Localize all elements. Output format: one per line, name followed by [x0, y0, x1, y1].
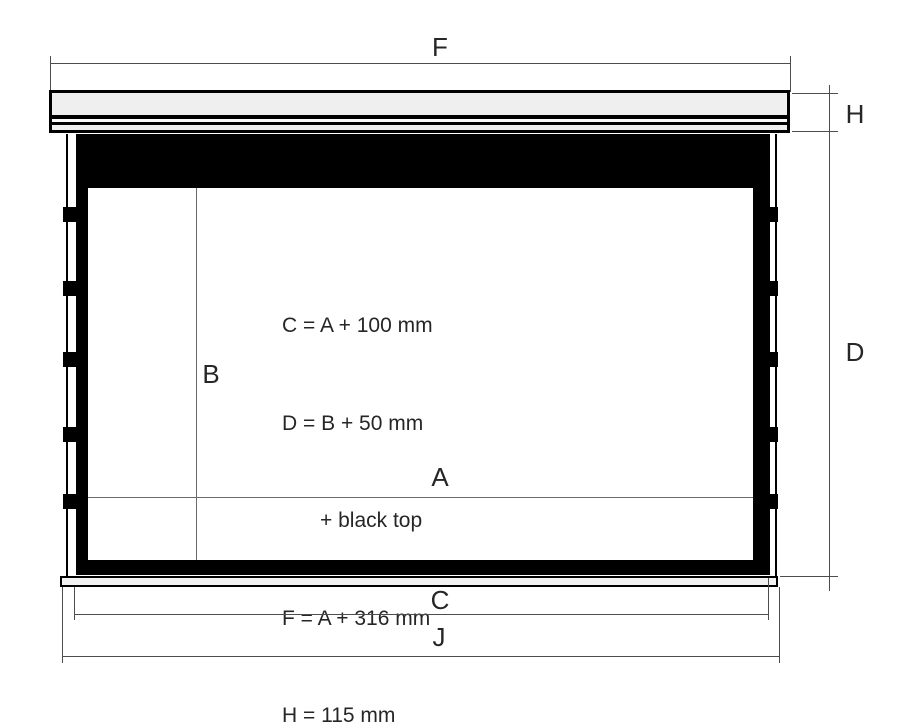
dim-label-b: B — [196, 360, 226, 388]
housing-groove-lower — [52, 122, 787, 125]
dim-line-f — [50, 63, 790, 64]
formula-line: + black top — [282, 505, 433, 538]
formula-list: C = A + 100 mm D = B + 50 mm + black top… — [282, 245, 433, 723]
dim-line-c — [74, 614, 769, 615]
screen-dimension-diagram: F H D B A C = A + 100 mm D = B + 50 mm +… — [0, 0, 900, 723]
dim-label-d: D — [840, 338, 870, 366]
formula-line: C = A + 100 mm — [282, 310, 433, 343]
tension-tab — [63, 427, 77, 442]
dim-label-c: C — [425, 586, 455, 614]
dim-tick-c-left — [74, 587, 75, 620]
dim-tick-j-left — [62, 587, 63, 663]
dim-tick-f-left — [50, 56, 51, 93]
tension-tab — [63, 281, 77, 296]
tension-tab — [763, 427, 778, 442]
dim-ext-h-top — [792, 93, 838, 94]
tension-tab — [763, 494, 778, 509]
dim-label-f: F — [425, 33, 455, 61]
formula-line: D = B + 50 mm — [282, 408, 433, 441]
dim-line-h-d — [829, 85, 830, 591]
tension-tab — [63, 494, 77, 509]
dim-ext-h-bottom — [792, 131, 838, 132]
dim-line-j — [62, 656, 780, 657]
dim-ext-d-bottom — [780, 576, 838, 577]
dim-label-h: H — [840, 100, 870, 128]
dim-label-j: J — [424, 623, 454, 651]
tension-tab — [763, 281, 778, 296]
bottom-weight-bar — [60, 576, 778, 587]
screen-housing — [49, 90, 790, 133]
formula-line: F = A + 316 mm — [282, 603, 433, 636]
tension-tab — [763, 207, 778, 222]
tension-tab — [763, 352, 778, 367]
dim-tick-f-right — [790, 56, 791, 92]
tension-tab — [63, 207, 77, 222]
formula-line: H = 115 mm — [282, 700, 433, 723]
tension-tab — [63, 352, 77, 367]
dim-tick-j-right — [779, 587, 780, 663]
